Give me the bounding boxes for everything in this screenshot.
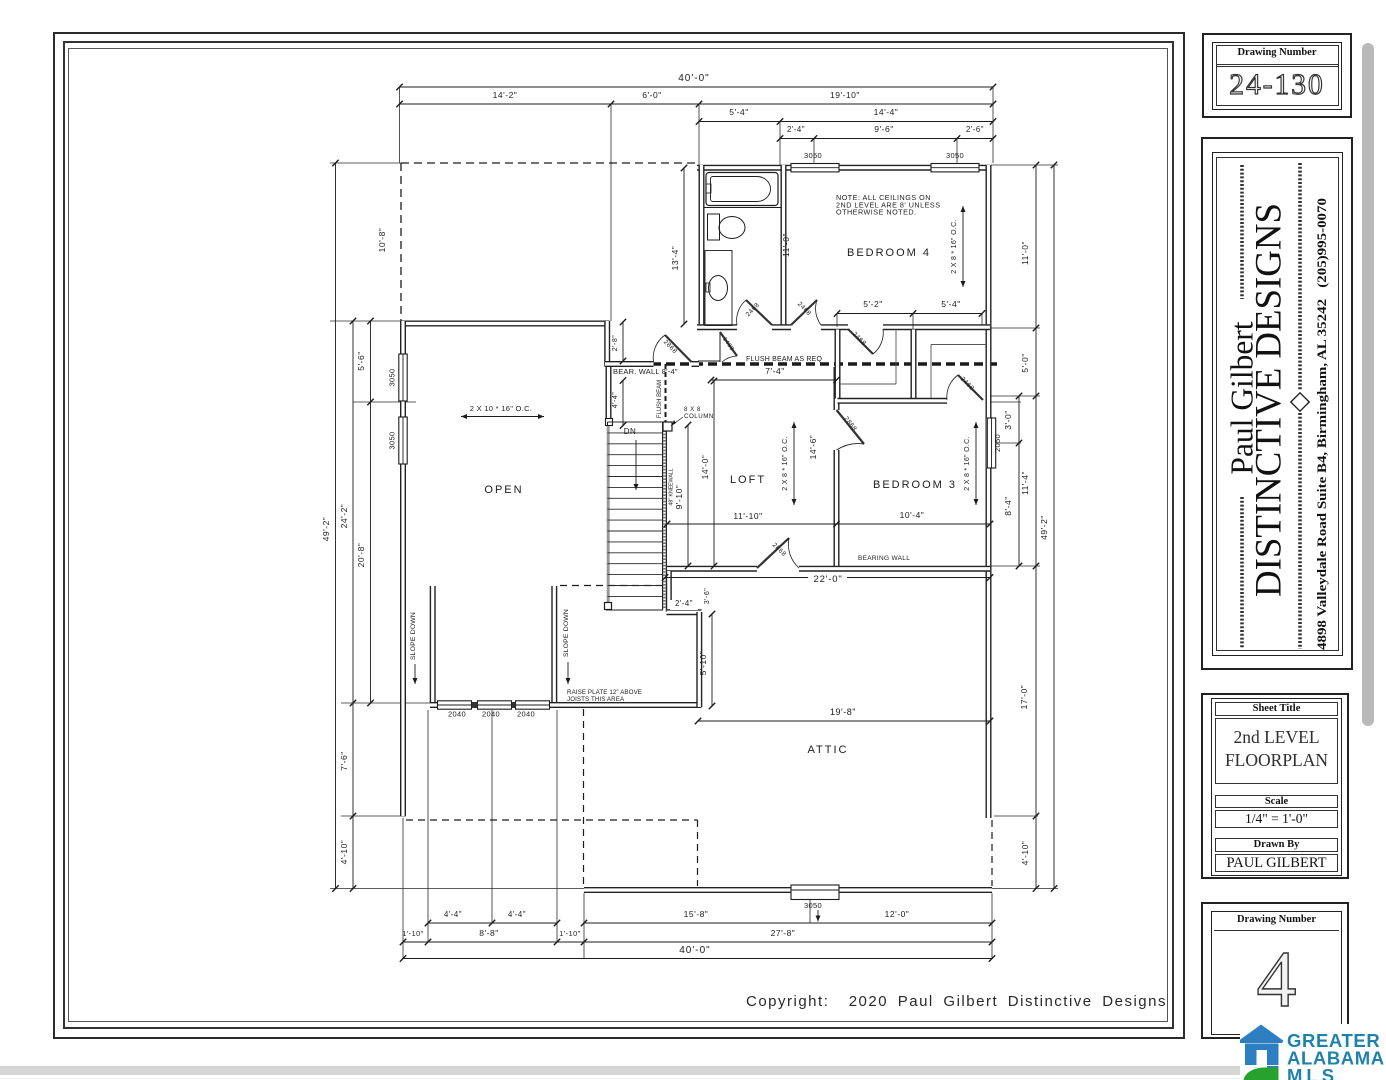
svg-text:MLS: MLS — [1287, 1065, 1338, 1080]
svg-text:DISTINCTIVE DESIGNS: DISTINCTIVE DESIGNS — [1249, 203, 1290, 597]
svg-text:4898 Valleydale Road Suite B4,: 4898 Valleydale Road Suite B4, Birmingha… — [1315, 198, 1329, 650]
